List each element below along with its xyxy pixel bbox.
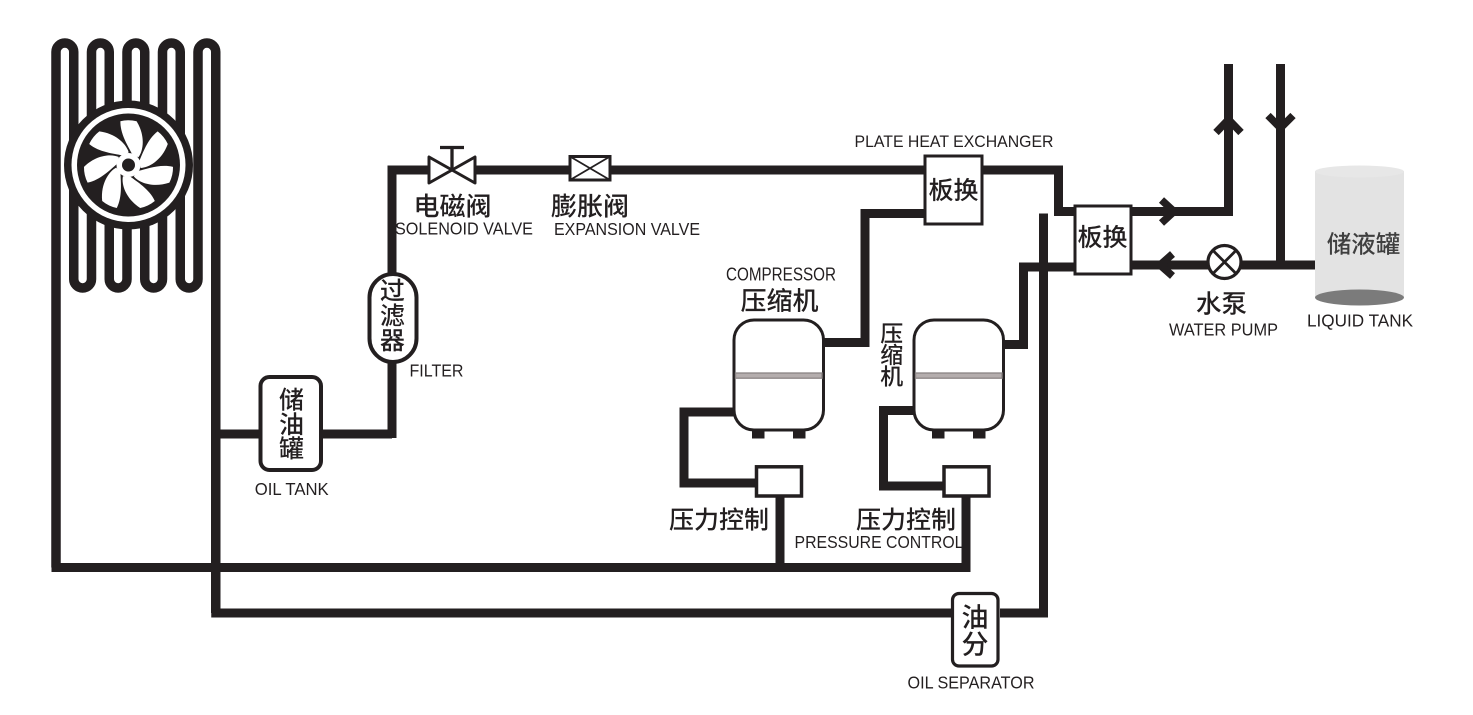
svg-text:OIL SEPARATOR: OIL SEPARATOR: [908, 673, 1035, 693]
svg-text:PRESSURE CONTROL: PRESSURE CONTROL: [795, 532, 964, 552]
svg-text:WATER PUMP: WATER PUMP: [1169, 320, 1278, 340]
svg-text:EXPANSION VALVE: EXPANSION VALVE: [554, 219, 700, 239]
svg-text:FILTER: FILTER: [410, 361, 464, 381]
svg-text:LIQUID TANK: LIQUID TANK: [1307, 311, 1413, 331]
svg-text:PLATE HEAT EXCHANGER: PLATE HEAT EXCHANGER: [855, 132, 1054, 151]
svg-text:OIL TANK: OIL TANK: [255, 479, 329, 499]
svg-text:SOLENOID VALVE: SOLENOID VALVE: [395, 219, 533, 239]
svg-text:COMPRESSOR: COMPRESSOR: [726, 263, 836, 284]
